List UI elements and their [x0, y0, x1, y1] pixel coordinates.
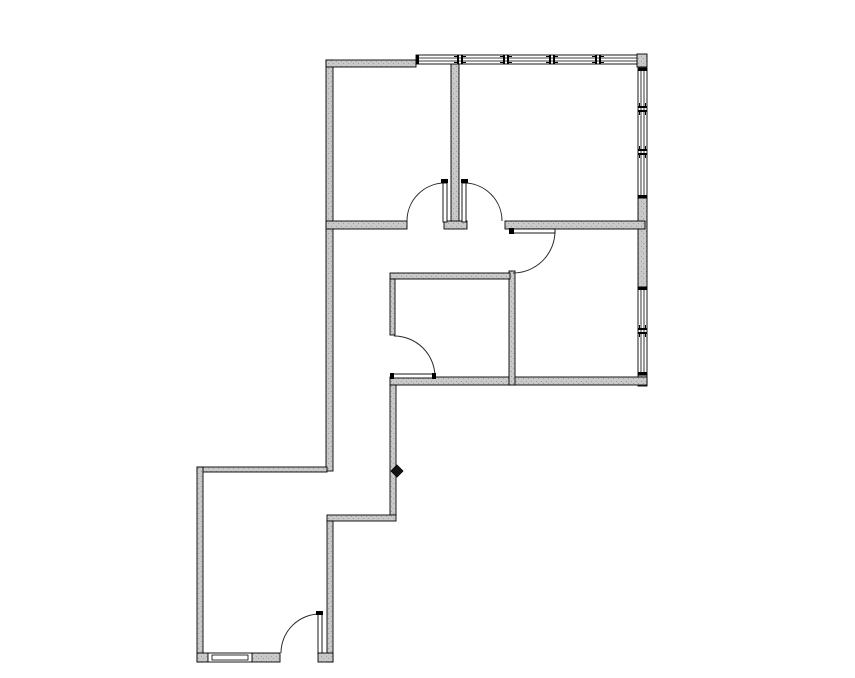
window-mullion	[599, 55, 601, 64]
door-upper-left-room	[407, 179, 448, 222]
window-mullion	[461, 55, 463, 64]
mullion-tick	[639, 112, 640, 115]
door-leaf	[443, 183, 447, 222]
mullion-tick	[509, 56, 512, 57]
mullion-tick	[555, 62, 558, 63]
door-leaf	[392, 374, 435, 378]
mullion-tick	[645, 325, 646, 328]
lower-room-south-wall-a	[197, 653, 208, 662]
exterior-right-wall-mid	[638, 198, 647, 287]
window-end-cap	[638, 372, 647, 375]
window-mullion	[457, 55, 459, 64]
mullion-tick	[546, 56, 549, 57]
middle-room-north-wall	[390, 273, 510, 279]
window-mullion	[638, 153, 647, 155]
window-frame	[638, 68, 647, 198]
mullion-tick	[645, 112, 646, 115]
mullion-tick	[645, 334, 646, 337]
mullion-tick	[639, 334, 640, 337]
window-band-right-upper	[638, 68, 647, 198]
exterior-top-wall-segment	[326, 60, 416, 67]
mullion-tick	[500, 62, 503, 63]
window-mullion	[638, 106, 647, 108]
corridor-jog-wall	[327, 515, 396, 521]
door-leaf-cap	[432, 373, 436, 379]
mullion-tick	[592, 62, 595, 63]
door-leaf-cap	[316, 611, 323, 615]
door-leaf-cap	[390, 373, 394, 379]
window-mullion	[553, 55, 555, 64]
mullion-tick	[639, 103, 640, 106]
mullion-tick	[645, 103, 646, 106]
door-lower-room	[281, 611, 323, 653]
door-swing-arc	[281, 614, 320, 653]
mullion-tick	[500, 56, 503, 57]
mullion-tick	[645, 155, 646, 158]
mullion-tick	[546, 62, 549, 63]
windows-layer	[208, 55, 647, 662]
door-swing-arc	[394, 336, 435, 377]
window-mullion	[503, 55, 505, 64]
door-swing-arc	[407, 183, 445, 221]
mullion-tick	[601, 56, 604, 57]
corridor-east-wall-upper	[390, 385, 396, 515]
midright-room-west-wall	[509, 271, 515, 385]
window-frame	[208, 653, 252, 662]
mullion-tick	[555, 56, 558, 57]
lower-room-south-wall-stub	[318, 653, 333, 662]
window-end-cap	[638, 287, 647, 290]
window-band-right-lower	[638, 287, 647, 375]
mullion-tick	[645, 146, 646, 149]
floor-plan	[0, 0, 855, 678]
doors-layer	[281, 179, 555, 653]
mullion-tick	[509, 62, 512, 63]
window-mullion	[638, 149, 647, 151]
mullion-tick	[463, 56, 466, 57]
lower-room-north-wall	[197, 467, 327, 472]
mullion-tick	[463, 62, 466, 63]
door-midright-room	[509, 228, 555, 273]
floor-plan-canvas	[0, 0, 855, 678]
lower-room-west-wall	[197, 467, 203, 662]
door-upper-right-room	[461, 179, 502, 222]
upper-rooms-divider-wall	[451, 64, 459, 222]
mullion-tick	[639, 325, 640, 328]
corridor-east-wall-lower	[327, 521, 333, 662]
mullion-tick	[592, 56, 595, 57]
exterior-left-wall	[326, 60, 333, 471]
mullion-tick	[601, 62, 604, 63]
window-mullion	[549, 55, 551, 64]
mullion-tick	[639, 146, 640, 149]
hall-north-wall-right	[505, 221, 645, 229]
door-leaf-cap	[509, 228, 514, 234]
window-mullion	[507, 55, 509, 64]
window-lower-room-south	[208, 653, 252, 662]
door-leaf	[513, 229, 555, 233]
window-end-cap	[638, 68, 647, 71]
mullion-tick	[454, 62, 457, 63]
lower-room-south-wall-b	[252, 653, 280, 662]
door-leaf	[462, 183, 466, 222]
window-mullion	[638, 110, 647, 112]
window-frame	[638, 287, 647, 375]
mullion-tick	[454, 56, 457, 57]
door-swing-arc	[464, 183, 502, 221]
window-mullion	[638, 332, 647, 334]
door-middle-room	[390, 336, 436, 379]
door-leaf-cap	[461, 179, 468, 183]
door-swing-arc	[513, 231, 555, 273]
walls-layer	[197, 54, 647, 662]
window-end-cap	[638, 195, 647, 198]
door-leaf-cap	[441, 179, 448, 183]
window-mullion	[638, 328, 647, 330]
hall-north-wall-left	[326, 221, 407, 229]
window-band-top	[416, 55, 637, 64]
window-end-cap	[416, 55, 419, 64]
door-leaf	[318, 614, 322, 653]
middle-room-west-wall	[390, 279, 395, 335]
mullion-tick	[639, 155, 640, 158]
window-mullion	[595, 55, 597, 64]
exterior-top-right-corner	[637, 54, 647, 67]
